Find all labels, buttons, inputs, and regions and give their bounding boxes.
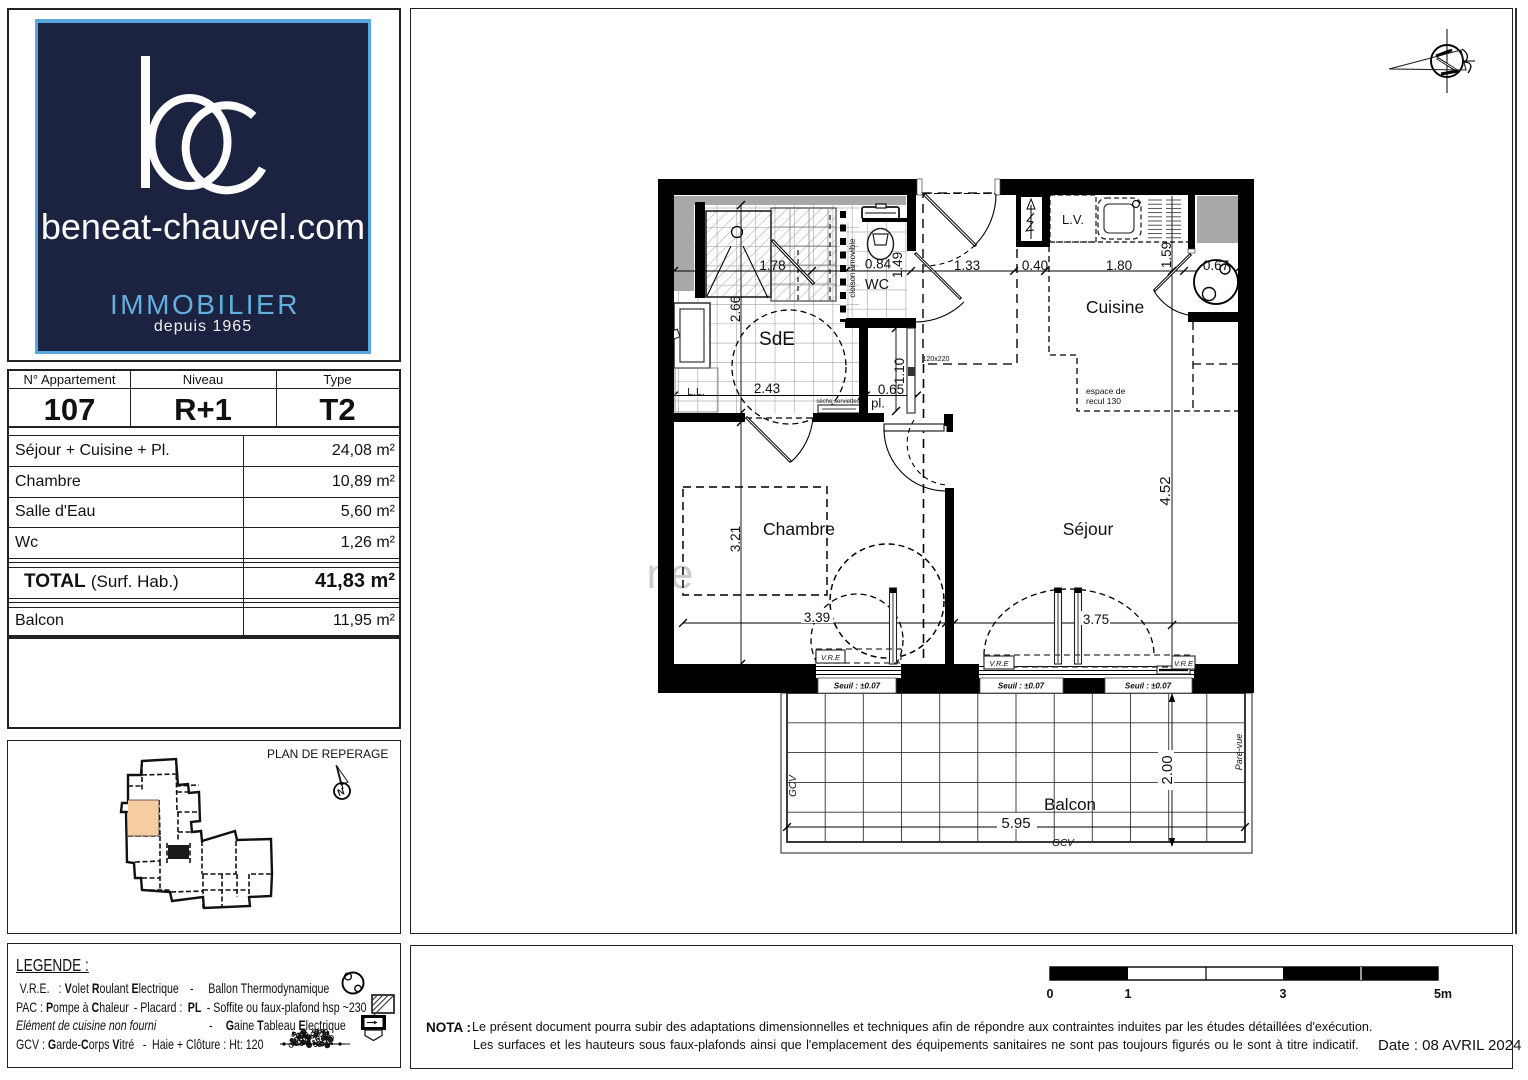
- svg-text:Pare-vue: Pare-vue: [1234, 734, 1244, 771]
- svg-text:3: 3: [1280, 987, 1287, 1001]
- svg-text:4.52: 4.52: [1157, 476, 1174, 505]
- svg-text:0: 0: [1047, 987, 1054, 1001]
- svg-text:0.40: 0.40: [1022, 258, 1048, 273]
- svg-text:Seuil : ±0.07: Seuil : ±0.07: [1125, 682, 1172, 691]
- svg-text:0.84: 0.84: [865, 257, 892, 272]
- svg-text:WC: WC: [865, 277, 889, 293]
- svg-text:Balcon: Balcon: [1044, 795, 1096, 814]
- svg-text:sèche serviettes: sèche serviettes: [816, 399, 859, 405]
- svg-text:Seuil : ±0.07: Seuil : ±0.07: [998, 682, 1045, 691]
- svg-text:5.95: 5.95: [1001, 815, 1030, 832]
- svg-text:3.39: 3.39: [804, 610, 830, 625]
- svg-text:recul 130: recul 130: [1086, 396, 1121, 406]
- svg-text:1: 1: [1125, 987, 1132, 1001]
- svg-text:Séjour: Séjour: [1063, 519, 1114, 539]
- svg-text:pl.: pl.: [871, 396, 885, 411]
- svg-text:1.49: 1.49: [890, 252, 905, 278]
- svg-text:espace de: espace de: [1086, 386, 1125, 396]
- svg-text:1.10: 1.10: [892, 358, 907, 384]
- svg-text:L.V.: L.V.: [1062, 212, 1084, 227]
- svg-text:Chambre: Chambre: [763, 519, 835, 539]
- svg-text:Seuil : ±0.07: Seuil : ±0.07: [834, 682, 881, 691]
- svg-text:SdE: SdE: [759, 329, 795, 350]
- svg-text:V.R.E: V.R.E: [821, 653, 841, 662]
- svg-text:3.21: 3.21: [728, 526, 743, 552]
- svg-text:Cuisine: Cuisine: [1086, 297, 1144, 317]
- svg-text:V.R.E: V.R.E: [1174, 659, 1194, 668]
- svg-text:5m: 5m: [1434, 987, 1452, 1001]
- svg-text:120x220: 120x220: [923, 356, 950, 363]
- svg-text:3.75: 3.75: [1083, 612, 1109, 627]
- svg-text:2.00: 2.00: [1159, 755, 1176, 784]
- svg-text:1.33: 1.33: [954, 258, 980, 273]
- svg-text:GCV: GCV: [788, 774, 799, 797]
- svg-text:L.L.: L.L.: [687, 386, 705, 398]
- svg-text:2.43: 2.43: [754, 381, 780, 396]
- svg-text:1.80: 1.80: [1106, 258, 1132, 273]
- svg-text:2.66: 2.66: [728, 296, 743, 322]
- svg-text:cloison amovible: cloison amovible: [848, 238, 857, 298]
- svg-text:0.67: 0.67: [1203, 258, 1229, 273]
- svg-text:1.59: 1.59: [1159, 242, 1174, 268]
- svg-text:V.R.E: V.R.E: [989, 659, 1009, 668]
- svg-text:GCV: GCV: [1052, 838, 1075, 849]
- svg-text:1.78: 1.78: [759, 258, 785, 273]
